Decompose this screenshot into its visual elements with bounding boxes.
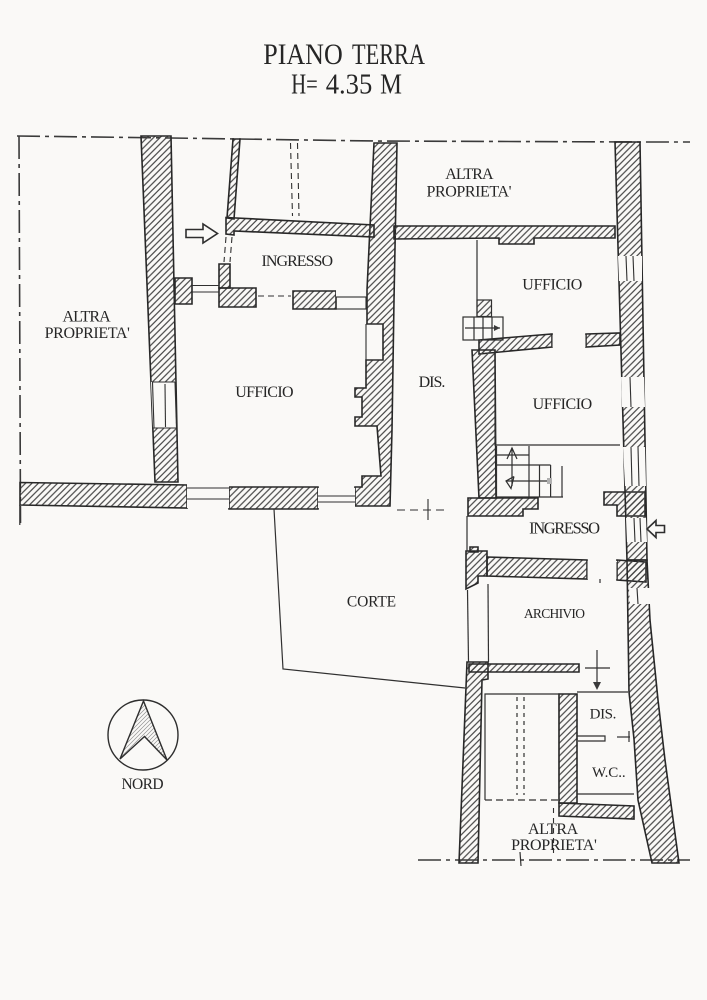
svg-text:ALTRA: ALTRA	[445, 166, 494, 183]
svg-text:PROPRIETA': PROPRIETA'	[427, 184, 512, 201]
svg-text:M: M	[380, 69, 402, 101]
svg-text:ALTRA: ALTRA	[63, 309, 112, 326]
svg-text:INGRESSO: INGRESSO	[529, 519, 600, 538]
svg-text:CORTE: CORTE	[347, 594, 396, 611]
svg-text:UFFICIO: UFFICIO	[235, 384, 293, 401]
svg-text:UFFICIO: UFFICIO	[533, 396, 593, 413]
svg-text:W.C..: W.C..	[592, 765, 626, 781]
svg-text:H=: H=	[291, 69, 318, 101]
svg-text:PROPRIETA': PROPRIETA'	[511, 837, 597, 854]
svg-text:ARCHIVIO: ARCHIVIO	[524, 606, 585, 621]
svg-text:UFFICIO: UFFICIO	[522, 277, 582, 294]
svg-text:PIANO: PIANO	[263, 38, 343, 71]
svg-text:DIS.: DIS.	[419, 374, 446, 391]
svg-text:ALTRA: ALTRA	[528, 821, 579, 838]
svg-text:TERRA: TERRA	[352, 38, 425, 71]
svg-text:DIS.: DIS.	[590, 707, 617, 723]
svg-text:4.35: 4.35	[326, 69, 373, 101]
svg-text:INGRESSO: INGRESSO	[262, 253, 334, 270]
svg-text:PROPRIETA': PROPRIETA'	[45, 325, 130, 342]
svg-text:NORD: NORD	[121, 776, 163, 793]
